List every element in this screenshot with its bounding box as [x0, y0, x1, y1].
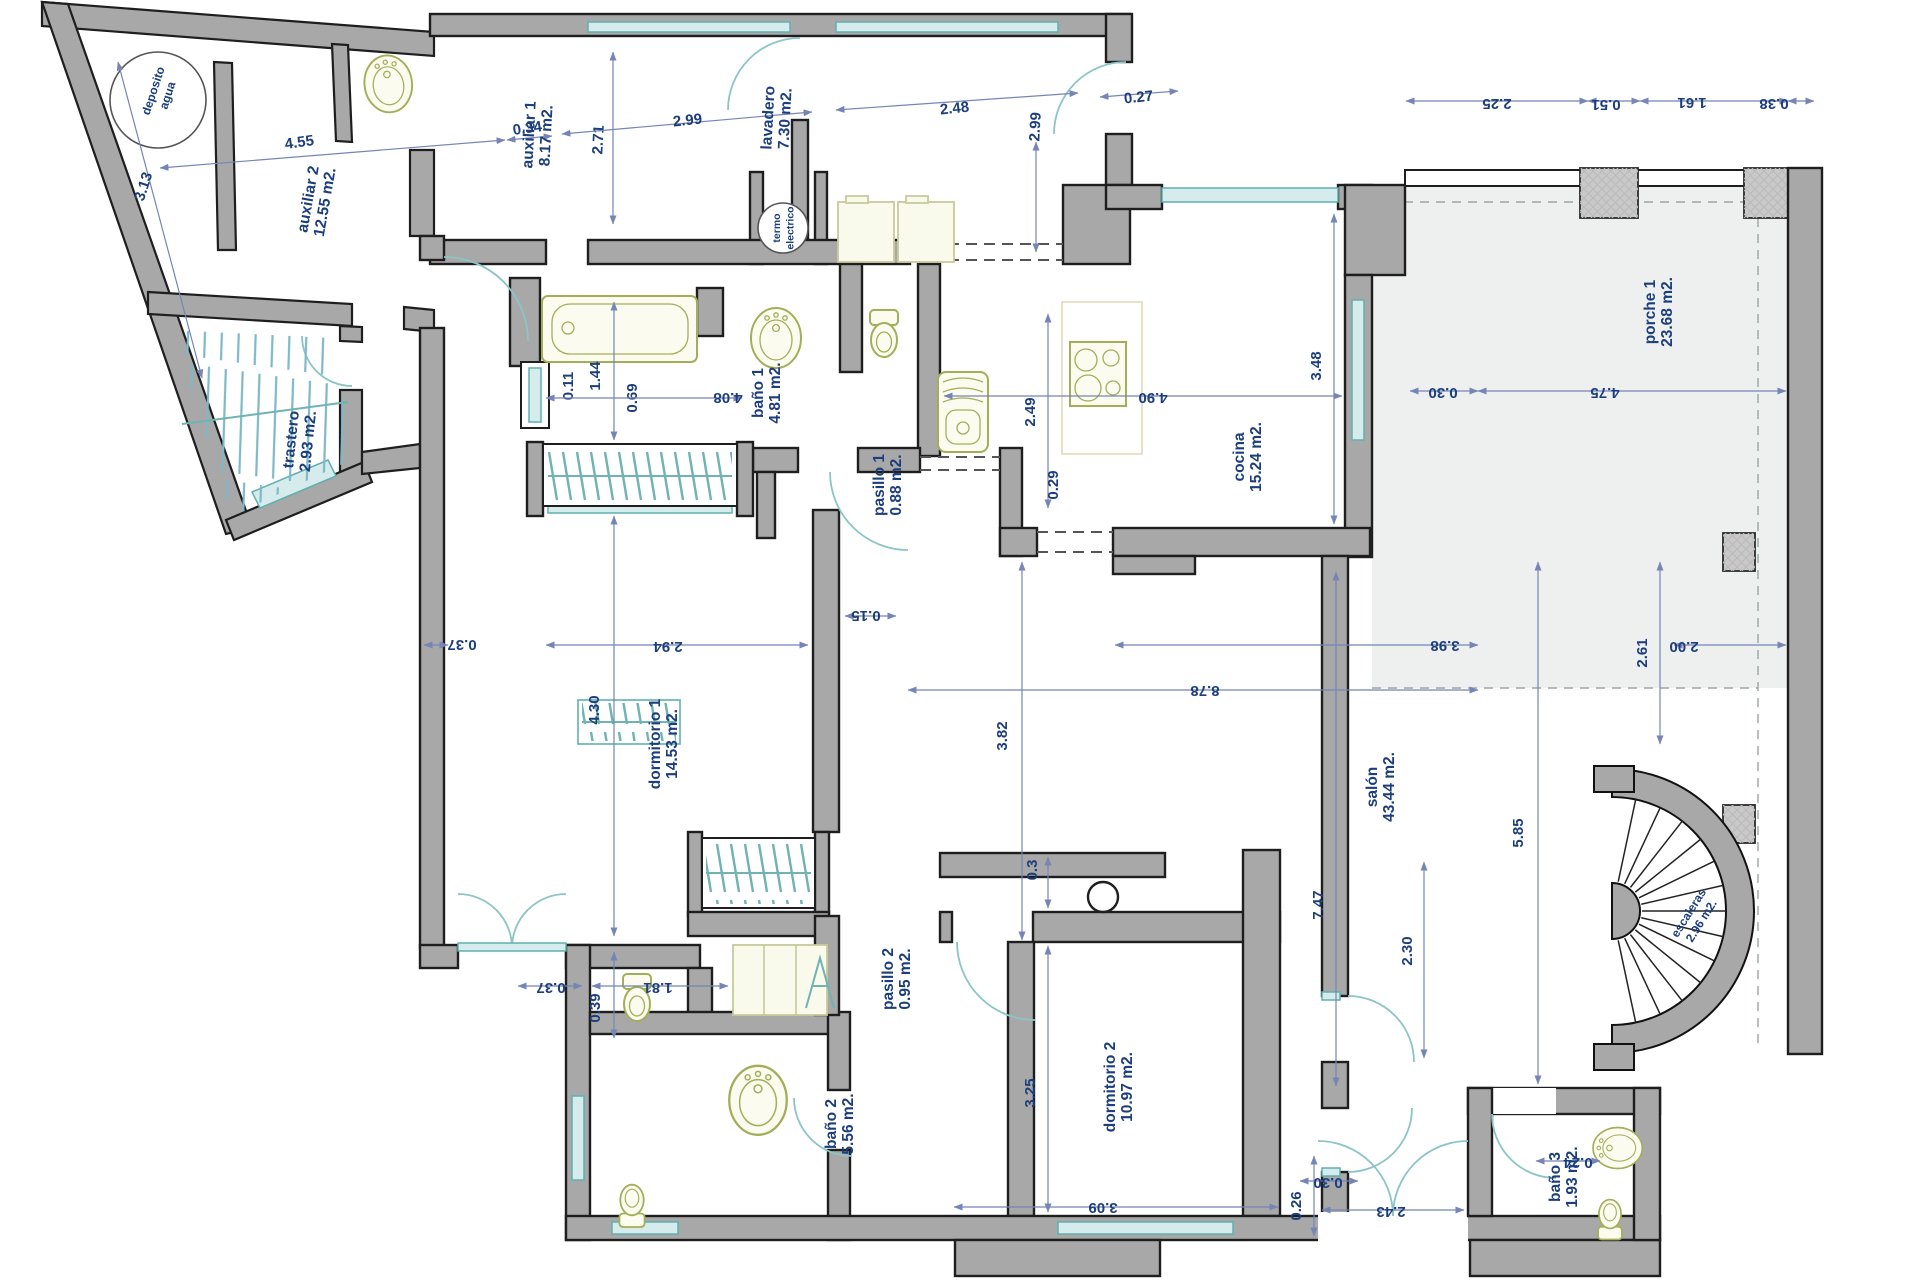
- cocina-entry-stub: [1113, 556, 1195, 574]
- lavadero-porch-door-arc: [1054, 62, 1126, 134]
- dimension-0.30: 0.30: [1300, 1174, 1358, 1191]
- dorm1-bottom-wall-a: [420, 945, 458, 968]
- lavadero-east-wall-top: [1106, 14, 1132, 62]
- porch-floor: [1372, 186, 1788, 688]
- wing-east-wall: [410, 150, 434, 236]
- dimension-text: 5.85: [1510, 818, 1527, 847]
- dimension-2.71: 2.71: [589, 52, 613, 224]
- porch-corner-pillar: [1345, 185, 1405, 275]
- pasillo1-stub: [757, 472, 775, 538]
- dimension-text: 0.37: [536, 979, 565, 996]
- deposito-partition: [214, 62, 236, 250]
- west-wall-top: [420, 236, 444, 260]
- room-label-auxiliar-2: auxiliar 212.55 m2.: [294, 163, 340, 238]
- room-label-escaleras: escaleras2.96 m2.: [1668, 886, 1722, 948]
- cocina-west-wall: [918, 264, 940, 456]
- dimension-0.38: 0.38: [1759, 95, 1814, 112]
- dimension-text: 0.37: [447, 636, 476, 653]
- porch-pillar-1-hatch: [1580, 168, 1638, 218]
- porch-pillar-2-hatch: [1744, 168, 1790, 218]
- dimension-0.29: 0.29: [1045, 470, 1062, 499]
- dimension-text: 2.61: [1634, 638, 1651, 667]
- tub-stub-right: [697, 288, 723, 336]
- sink-icon-bano1: [751, 308, 801, 368]
- salon-east-wall: [1322, 556, 1348, 996]
- dimension-text: 3.09: [1088, 1199, 1117, 1216]
- dimension-4.55: 4.55: [160, 132, 505, 168]
- cocina-top-wall-left: [1106, 185, 1162, 209]
- bidet-icon-bano2: [619, 1185, 644, 1227]
- wardrobe-pasillo2: [702, 838, 815, 908]
- bano3-door-opening: [1492, 1088, 1556, 1114]
- bano2-east-wall-a: [828, 1012, 850, 1090]
- sink-icon-aux2: [361, 52, 416, 115]
- bathtub-icon: [542, 296, 697, 362]
- sink-icon-bano2: [729, 1066, 787, 1135]
- dimension-text: 8.78: [1190, 682, 1219, 699]
- dorm2-east-wall: [1243, 850, 1280, 1216]
- dimension-text: 2.94: [653, 638, 683, 655]
- dimension-2.94: 2.94: [546, 638, 808, 655]
- room-label-lavadero: lavadero7.30 m2.: [758, 85, 795, 150]
- dimension-text: 2.99: [672, 111, 703, 131]
- cocina-window: [1162, 188, 1338, 202]
- dimension-text: 0.29: [1045, 470, 1062, 499]
- room-label-dormitorio-2: dormitorio 210.97 m2.: [1102, 1042, 1136, 1132]
- salon-terrace-door-2: [1348, 1108, 1412, 1172]
- room-label-bano-1: baño 14.81 m2.: [750, 362, 784, 423]
- water-heater-icon: [758, 203, 808, 253]
- dimension-text: 1.44: [587, 361, 604, 391]
- dimension-3.82: 3.82: [994, 562, 1022, 940]
- room-label-porche-1: porche 123.68 m2.: [1642, 277, 1676, 347]
- column-icon: [1088, 882, 1118, 912]
- dimension-text: 2.99: [1026, 112, 1045, 142]
- lavadero-window: [836, 22, 1058, 32]
- bano2-west-window: [572, 1096, 584, 1180]
- dimension-4.90: 4.90: [944, 389, 1342, 406]
- dimension-0.15: 0.15: [845, 607, 896, 624]
- dimension-text: 1.81: [643, 979, 672, 996]
- sink-nook-partition: [332, 44, 352, 142]
- dimension-text: 7.47: [1310, 890, 1327, 919]
- aux1-window: [588, 22, 790, 32]
- bano2-west-wall: [566, 945, 590, 1240]
- dimension-text: 2.43: [1376, 1203, 1405, 1220]
- dimension-text: 0.26: [1288, 1191, 1305, 1220]
- dorm2-south-window: [1058, 1222, 1233, 1234]
- salon-east-stub: [1322, 1062, 1348, 1108]
- room-label-bano-2: baño 25.56 m2.: [823, 1093, 857, 1154]
- dimension-2.30: 2.30: [1399, 862, 1424, 1058]
- lavadero-east-wall-bottom: [1106, 134, 1132, 189]
- room-label-bano-3: baño 31.93 m2.: [1547, 1146, 1581, 1207]
- dimension-text: 3.48: [1308, 351, 1325, 380]
- dimension-text: 4.30: [586, 695, 603, 724]
- dorm2-upper-wall: [940, 853, 1165, 877]
- wardrobe-dorm1: [543, 444, 737, 506]
- dimension-text: 1.61: [1677, 94, 1706, 111]
- dimension-text: 2.30: [1399, 936, 1416, 965]
- room-label-pasillo-2: pasillo 20.95 m2.: [880, 948, 914, 1010]
- dimension-3.09: 3.09: [954, 1199, 1278, 1216]
- wardrobe-stub-left: [527, 442, 543, 516]
- bano1-divider: [840, 264, 862, 372]
- dimension-text: 4.55: [284, 132, 315, 153]
- sink-icon-bano3: [1593, 1128, 1642, 1169]
- dorm1-door-right-arc: [512, 894, 566, 948]
- stair-step: [1618, 799, 1635, 881]
- bano1-bottom-wall-a: [753, 448, 798, 472]
- toilet-icon-bano1: [870, 310, 898, 357]
- bano2-nook-stub: [688, 968, 712, 1014]
- dimension-text: 2.25: [1482, 95, 1511, 112]
- floor-plan-canvas: 4.553.130.342.712.992.482.990.272.250.51…: [0, 0, 1920, 1280]
- room-label-cocina: cocina15.24 m2.: [1231, 422, 1265, 492]
- dimension-text: 0.15: [851, 607, 880, 624]
- kitchen-sink-icon: [938, 372, 988, 452]
- dimension-0.27: 0.27: [1100, 88, 1178, 108]
- south-step-2: [1470, 1240, 1660, 1276]
- room-label-auxiliar-1: auxiliar 18.17 m2.: [519, 100, 556, 169]
- wardrobe-stub-right: [737, 442, 753, 516]
- terrace-door-sill-1: [1322, 992, 1340, 1000]
- dimension-text: 2.48: [939, 99, 970, 119]
- dimension-text: 0.30: [1428, 384, 1457, 401]
- dimension-text: 2.00: [1669, 638, 1698, 655]
- east-outer-wall: [1788, 168, 1822, 1054]
- room-label-salon: salón43.44 m2.: [1364, 752, 1398, 822]
- dimension-2.25: 2.25: [1406, 95, 1588, 112]
- dimension-text: 3.82: [994, 721, 1011, 750]
- dorm1-east-wall: [813, 510, 839, 832]
- dimension-text: 3.98: [1430, 637, 1459, 654]
- dimension-text: 2.49: [1022, 397, 1039, 426]
- dimension-text: 0.51: [1591, 96, 1620, 113]
- dimension-text: 0.11: [560, 372, 577, 400]
- wing-top-wall: [42, 2, 434, 56]
- dimension-text: 4.08: [713, 389, 742, 406]
- wing-connector-wall: [362, 444, 420, 474]
- dorm1-door-left-arc: [458, 894, 512, 948]
- niche-bottom-wall: [688, 912, 829, 936]
- dimension-text: 4.90: [1138, 389, 1167, 406]
- dimension-text: 0.39: [587, 993, 604, 1022]
- dimension-3.48: 3.48: [1308, 214, 1334, 524]
- cocina-bottom-wall-b: [1113, 528, 1370, 556]
- dimension-text: 3.25: [1022, 1078, 1039, 1107]
- dimension-text: 2.71: [589, 125, 608, 155]
- trastero-east-stub: [340, 326, 362, 342]
- dimension-0.51: 0.51: [1588, 96, 1640, 113]
- dimension-2.99: 2.99: [1026, 112, 1045, 252]
- dimension-text: 0.3: [1024, 860, 1041, 881]
- dimension-text: 0.30: [1313, 1174, 1342, 1191]
- bano1-west-window: [529, 368, 541, 422]
- dimension-text: 4.75: [1590, 384, 1619, 401]
- west-wall: [420, 328, 444, 948]
- room-label-dormitorio-1: dormitorio 114.53 m2.: [647, 698, 681, 789]
- bano3-west-wall: [1468, 1088, 1492, 1216]
- strip-bottom-wall-a: [430, 240, 546, 264]
- dorm2-top-wall-a: [940, 912, 952, 942]
- stair-step: [1618, 940, 1635, 1022]
- dimension-text: 0.27: [1123, 88, 1154, 108]
- cocina-east-window: [1352, 300, 1364, 440]
- niche-stub-right: [815, 832, 829, 916]
- niche-stub-left: [688, 832, 702, 916]
- room-label-pasillo-1: pasillo 10.88 m2.: [871, 454, 905, 516]
- dorm1-door-sill: [458, 943, 566, 951]
- terrace-pillar-1-hatch: [1723, 533, 1755, 571]
- south-step-1: [955, 1240, 1160, 1276]
- bano3-east-wall: [1634, 1088, 1660, 1240]
- toilet-icon-bano3: [1598, 1200, 1622, 1240]
- dimension-text: 3.13: [131, 170, 156, 203]
- salon-terrace-door-1: [1348, 996, 1414, 1062]
- floor-plan-page: 4.553.130.342.712.992.482.990.272.250.51…: [0, 0, 1920, 1280]
- room-label-trastero: trastero2.93 m2.: [280, 408, 320, 472]
- cocina-bottom-wall-a: [1000, 528, 1037, 556]
- dimension-0.11: 0.11: [560, 372, 577, 400]
- dimension-text: 0.38: [1759, 95, 1788, 112]
